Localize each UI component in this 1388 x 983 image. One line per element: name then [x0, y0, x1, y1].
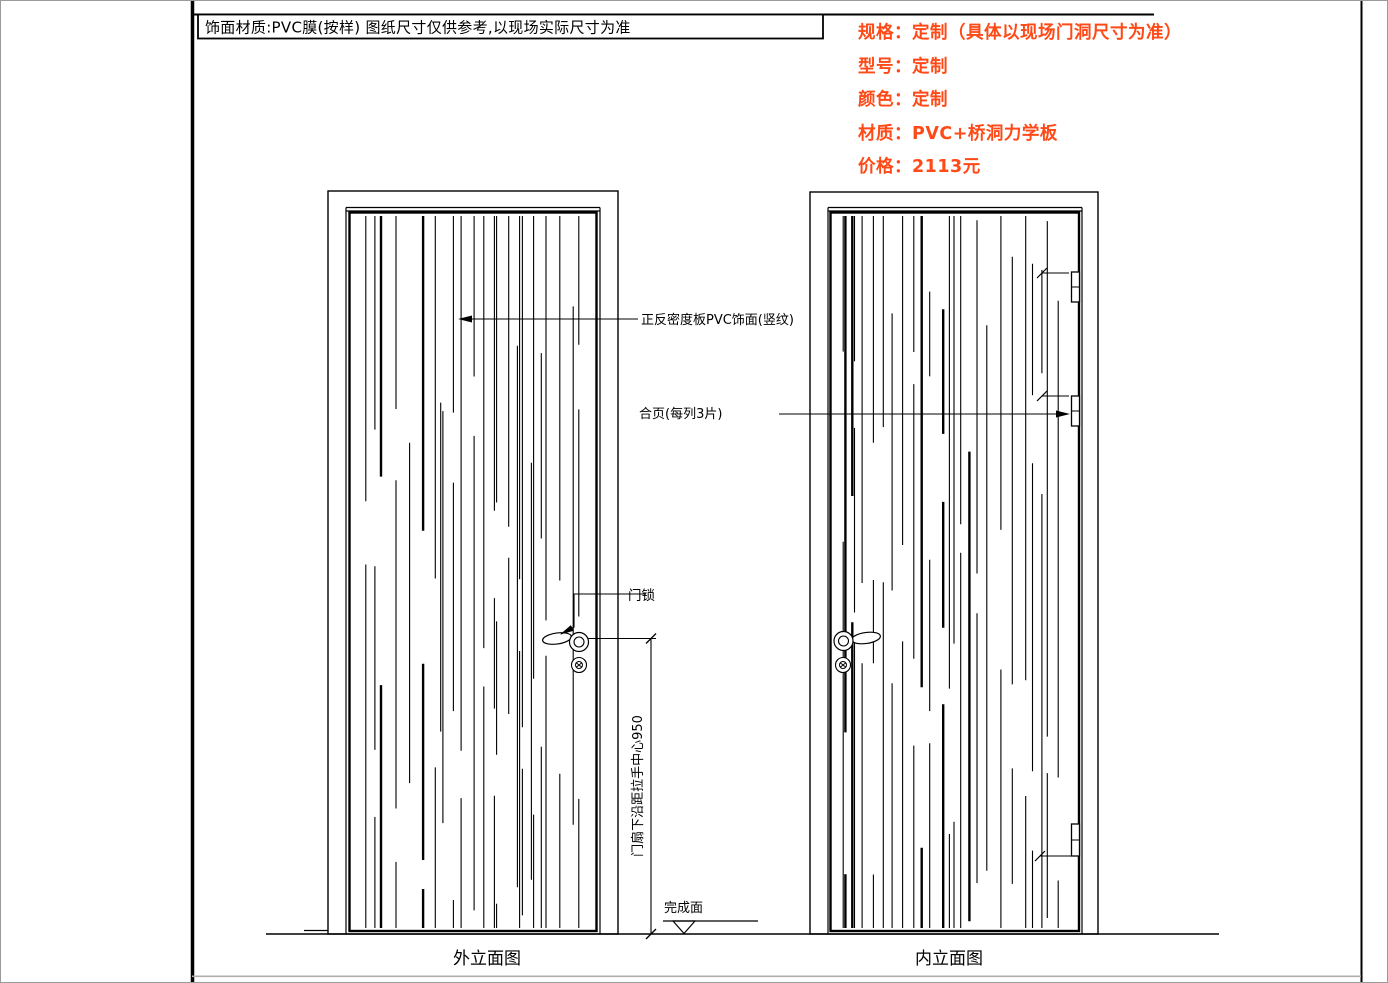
- title-bar-text: 饰面材质:PVC膜(按样) 图纸尺寸仅供参考,以现场实际尺寸为准: [205, 19, 631, 37]
- arrowhead-right-icon: [1056, 411, 1070, 418]
- left-view-caption: 外立面图: [453, 949, 521, 969]
- right-door-wood-grain: [843, 216, 1058, 928]
- surface-material-label: 正反密度板PVC饰面(竖纹): [641, 312, 794, 328]
- handle-rosette-inner: [574, 637, 584, 647]
- right-door-handle: [834, 631, 881, 673]
- lock-label: 门锁: [628, 588, 655, 604]
- hinge-label: 合页(每列3片): [639, 406, 722, 422]
- spec-material: 材质：PVC+桥洞力学板: [858, 118, 1278, 152]
- handle-height-dim-label: 门扇下沿距拉手中心950: [630, 715, 646, 857]
- handle-rosette-inner: [839, 636, 849, 646]
- left-door-frame-outer: [328, 191, 618, 934]
- spec-price: 价格：2113元: [858, 151, 1278, 185]
- lever-handle: [542, 631, 572, 646]
- product-specs: 规格：定制（具体以现场门洞尺寸为准） 型号：定制 颜色：定制 材质：PVC+桥洞…: [858, 17, 1278, 185]
- left-door-handle: [542, 631, 589, 672]
- right-view-caption: 内立面图: [915, 949, 983, 969]
- right-door-elevation: [810, 192, 1098, 934]
- finish-level-label: 完成面: [664, 901, 703, 916]
- left-door-elevation: [328, 191, 618, 934]
- spec-color: 颜色：定制: [858, 84, 1278, 118]
- drawing-sheet: 饰面材质:PVC膜(按样) 图纸尺寸仅供参考,以现场实际尺寸为准: [0, 0, 1388, 983]
- spec-size: 规格：定制（具体以现场门洞尺寸为准）: [858, 17, 1278, 51]
- left-door-wood-grain: [366, 216, 579, 928]
- level-marker-icon: [673, 921, 695, 934]
- arrowhead-left-icon: [458, 316, 472, 323]
- lever-handle: [851, 631, 881, 646]
- spec-model: 型号：定制: [858, 51, 1278, 85]
